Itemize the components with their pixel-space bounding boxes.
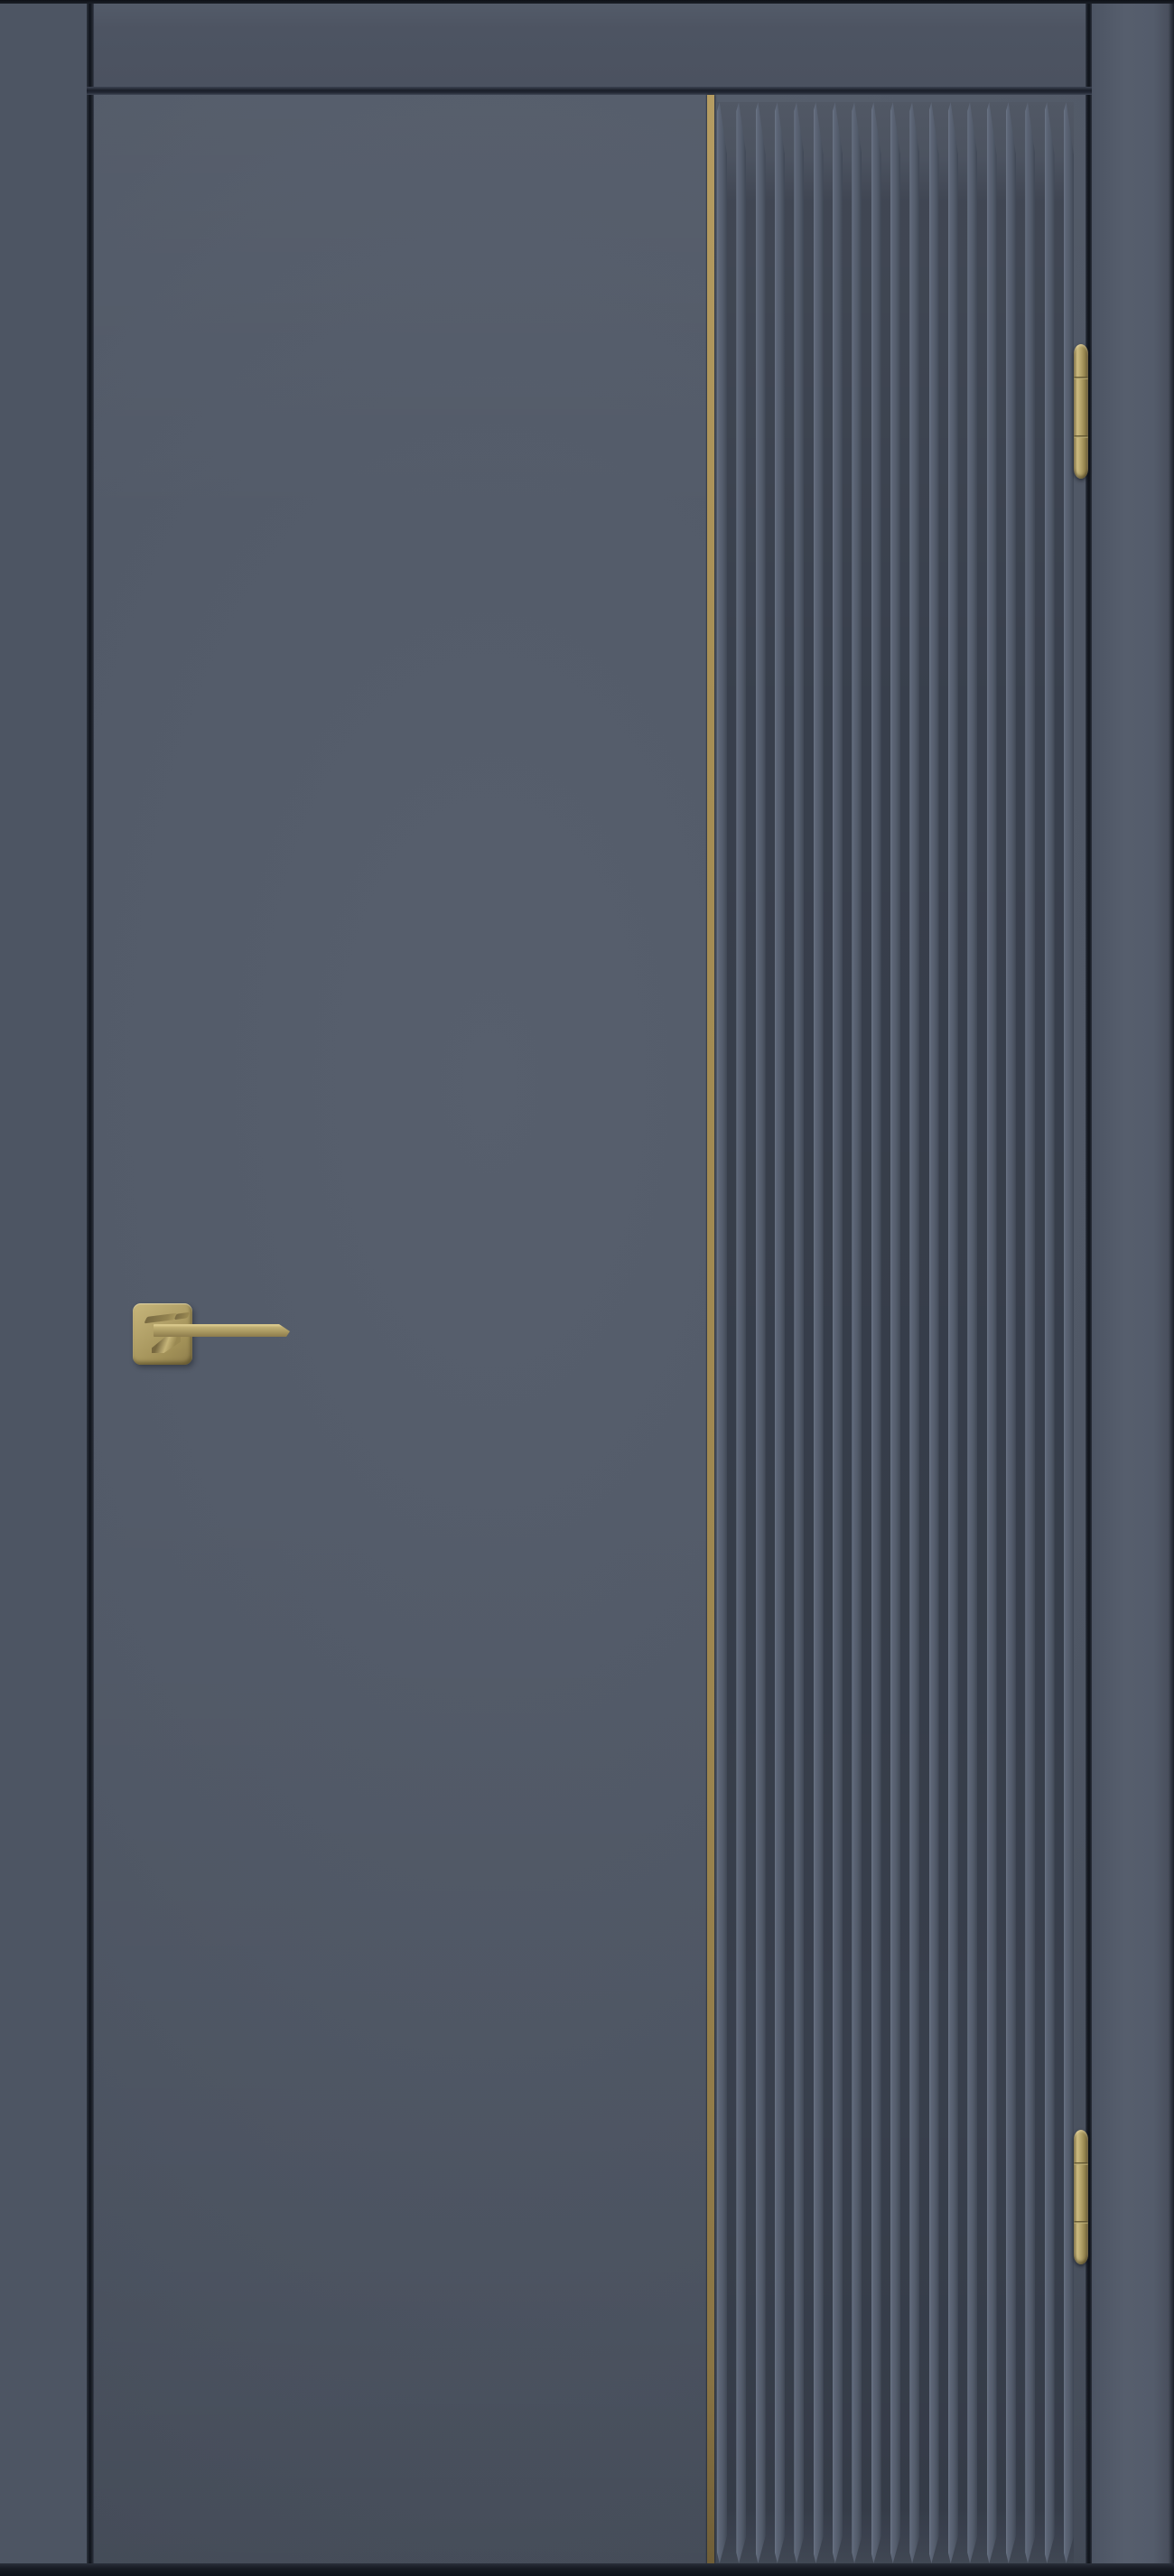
door-frame-header	[93, 4, 1085, 87]
flute-ridge	[833, 102, 843, 2563]
flute-ridge	[1045, 102, 1055, 2563]
flute-ridge	[775, 102, 785, 2563]
brass-inlay-strip	[707, 95, 714, 2563]
fluted-panel	[717, 102, 1074, 2563]
flute-ridge	[736, 102, 746, 2563]
hinge-top	[1074, 344, 1088, 479]
flute-ridge	[1006, 102, 1016, 2563]
flute-ridge	[909, 102, 919, 2563]
flute-ridge	[948, 102, 958, 2563]
flute-ridge	[929, 102, 939, 2563]
flute-ridge	[967, 102, 977, 2563]
door-frame-left-stile	[0, 4, 87, 2563]
hinge-bottom	[1074, 2130, 1088, 2264]
flute-ridge	[1025, 102, 1035, 2563]
flute-ridge	[756, 102, 766, 2563]
door-product-image	[0, 0, 1174, 2576]
flute-ridge	[987, 102, 997, 2563]
flute-ridge	[852, 102, 862, 2563]
flute-ridge	[871, 102, 881, 2563]
header-bottom-shadow	[87, 87, 1092, 95]
hinge-knuckle-seam	[1074, 2162, 1088, 2165]
hinge-knuckle-seam	[1074, 435, 1088, 438]
flute-ridge	[794, 102, 804, 2563]
flute-ridge	[890, 102, 900, 2563]
hinge-knuckle-seam	[1074, 2221, 1088, 2224]
door-frame-right-stile	[1092, 4, 1174, 2563]
frame-leaf-gap-left	[87, 4, 94, 2563]
floor-shadow	[0, 2563, 1174, 2576]
flute-ridge	[814, 102, 824, 2563]
flute-ridge	[1064, 102, 1074, 2563]
flute-ridge	[717, 102, 727, 2563]
hinge-knuckle-seam	[1074, 377, 1088, 379]
handle-lever	[154, 1324, 290, 1337]
